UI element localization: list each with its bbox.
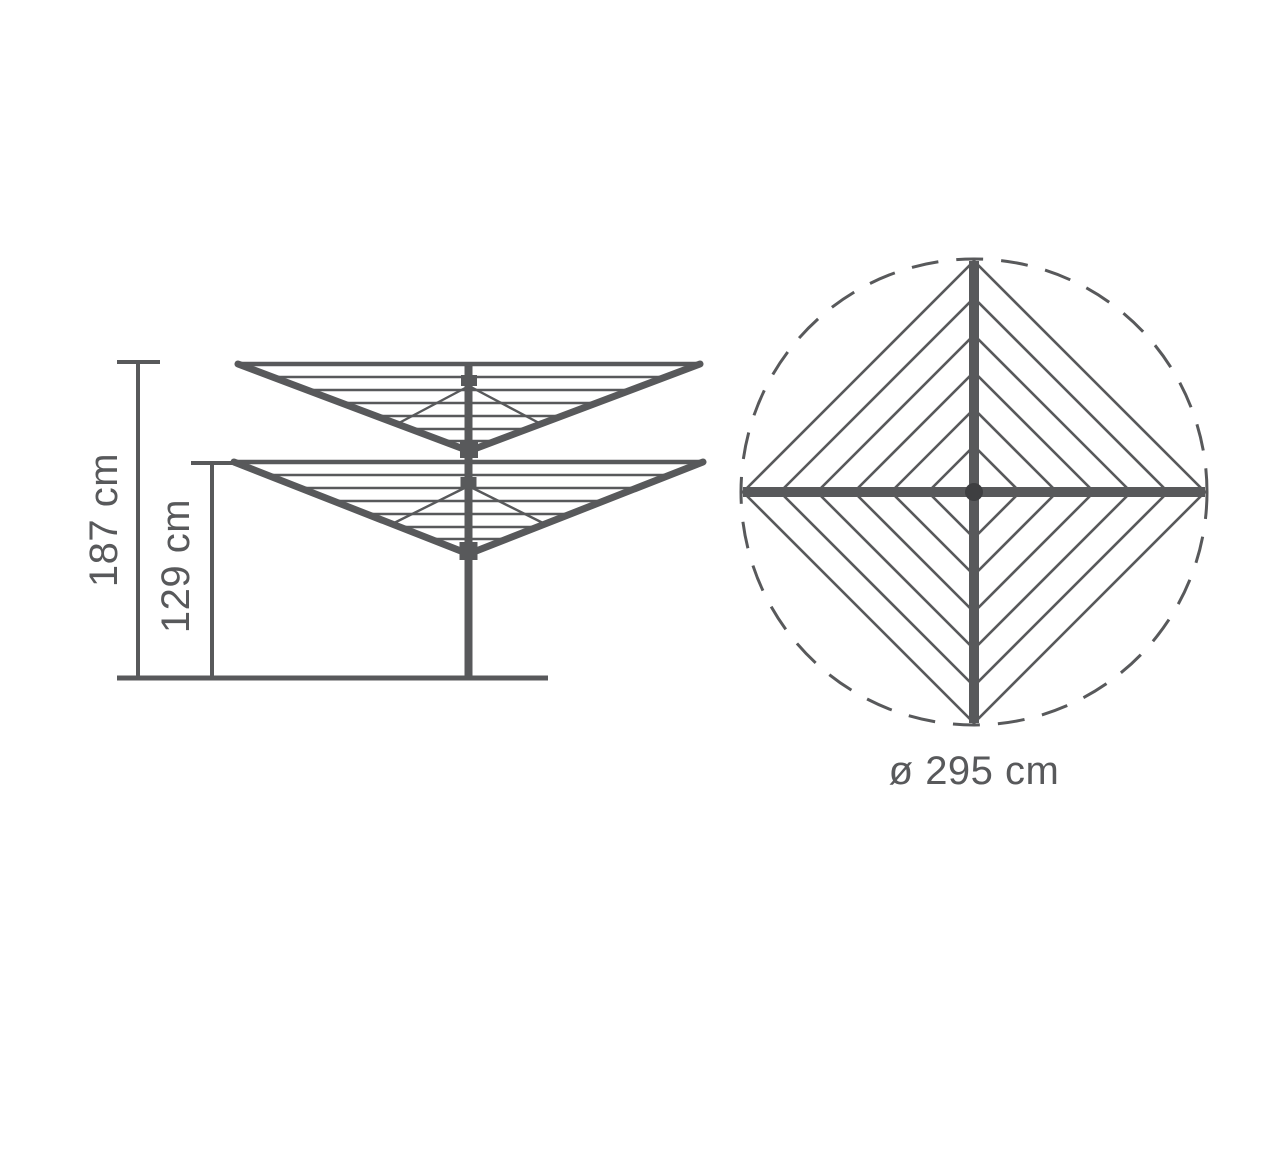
top-view: ø 295 cm (741, 259, 1207, 793)
strut (392, 486, 469, 524)
product-dimension-diagram: 187 cm 129 cm (0, 0, 1280, 1167)
upper-apex-connector (460, 440, 478, 458)
strut (469, 386, 541, 424)
rotary-dryer-dimension-drawing: 187 cm 129 cm (0, 0, 1280, 1167)
dimension-lowered-height: 129 cm (154, 463, 234, 678)
strut (469, 486, 546, 524)
diameter-label: ø 295 cm (889, 749, 1060, 793)
lower-cap-connector (461, 477, 477, 488)
total-height-label: 187 cm (82, 453, 126, 587)
lowered-height-label: 129 cm (154, 499, 198, 633)
lower-apex-connector (460, 542, 478, 560)
strut (397, 386, 469, 424)
center-hub-dot (965, 483, 983, 501)
center-pole (465, 366, 473, 678)
side-view: 187 cm 129 cm (82, 362, 703, 678)
upper-cap-connector (461, 375, 477, 386)
dimension-total-height: 187 cm (82, 362, 160, 678)
